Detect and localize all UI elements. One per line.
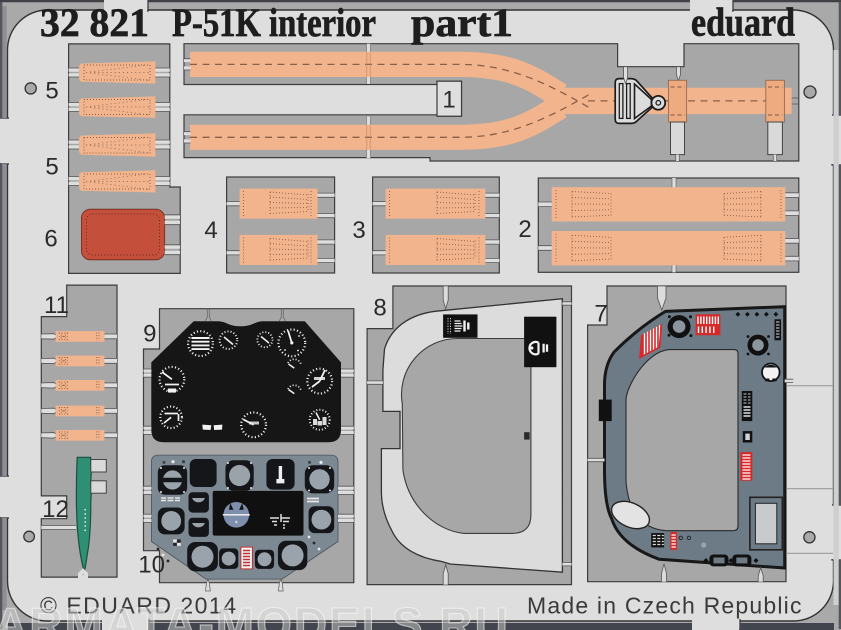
svg-text:ARMATA-MODELS.RU: ARMATA-MODELS.RU: [0, 598, 510, 630]
svg-text:8: 8: [373, 295, 386, 322]
svg-text:12: 12: [42, 496, 69, 523]
svg-text:2: 2: [518, 216, 531, 243]
svg-text:5: 5: [45, 78, 58, 105]
svg-text:10: 10: [138, 552, 165, 579]
svg-text:P-51K interior: P-51K interior: [172, 0, 376, 45]
svg-text:3: 3: [352, 217, 365, 244]
svg-text:11: 11: [44, 292, 69, 319]
svg-text:eduard: eduard: [691, 0, 795, 45]
svg-text:7: 7: [594, 301, 607, 328]
svg-text:Made in Czech Republic: Made in Czech Republic: [527, 593, 803, 619]
svg-text:1: 1: [442, 87, 455, 114]
svg-text:part1: part1: [411, 0, 513, 45]
svg-text:5: 5: [45, 154, 58, 181]
svg-text:32 821: 32 821: [40, 0, 149, 45]
svg-text:4: 4: [204, 217, 217, 244]
svg-text:6: 6: [44, 226, 57, 253]
svg-text:9: 9: [143, 321, 156, 348]
